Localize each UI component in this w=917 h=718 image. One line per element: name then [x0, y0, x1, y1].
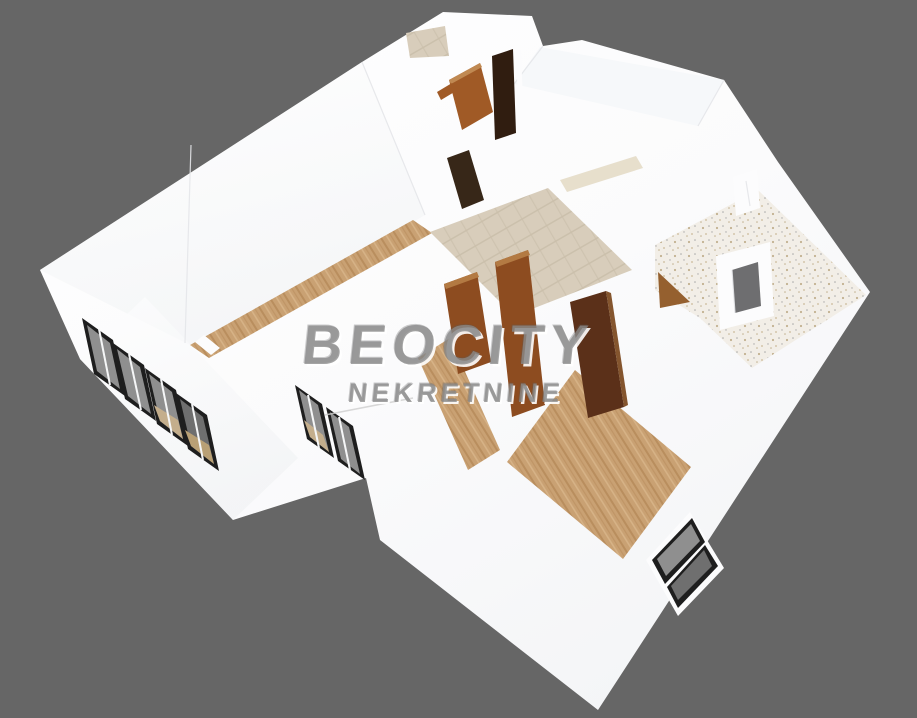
watermark-title: BEOCITY [299, 313, 596, 376]
floor-plan-render: BEOCITY BEOCITY BEOCITY NEKRETNINE NEKRE… [0, 0, 917, 718]
door-top-walnut [492, 49, 516, 140]
terrazzo-window-opening [732, 262, 761, 313]
watermark-subtitle: NEKRETNINE [347, 377, 566, 408]
door-frame-right [733, 169, 760, 216]
